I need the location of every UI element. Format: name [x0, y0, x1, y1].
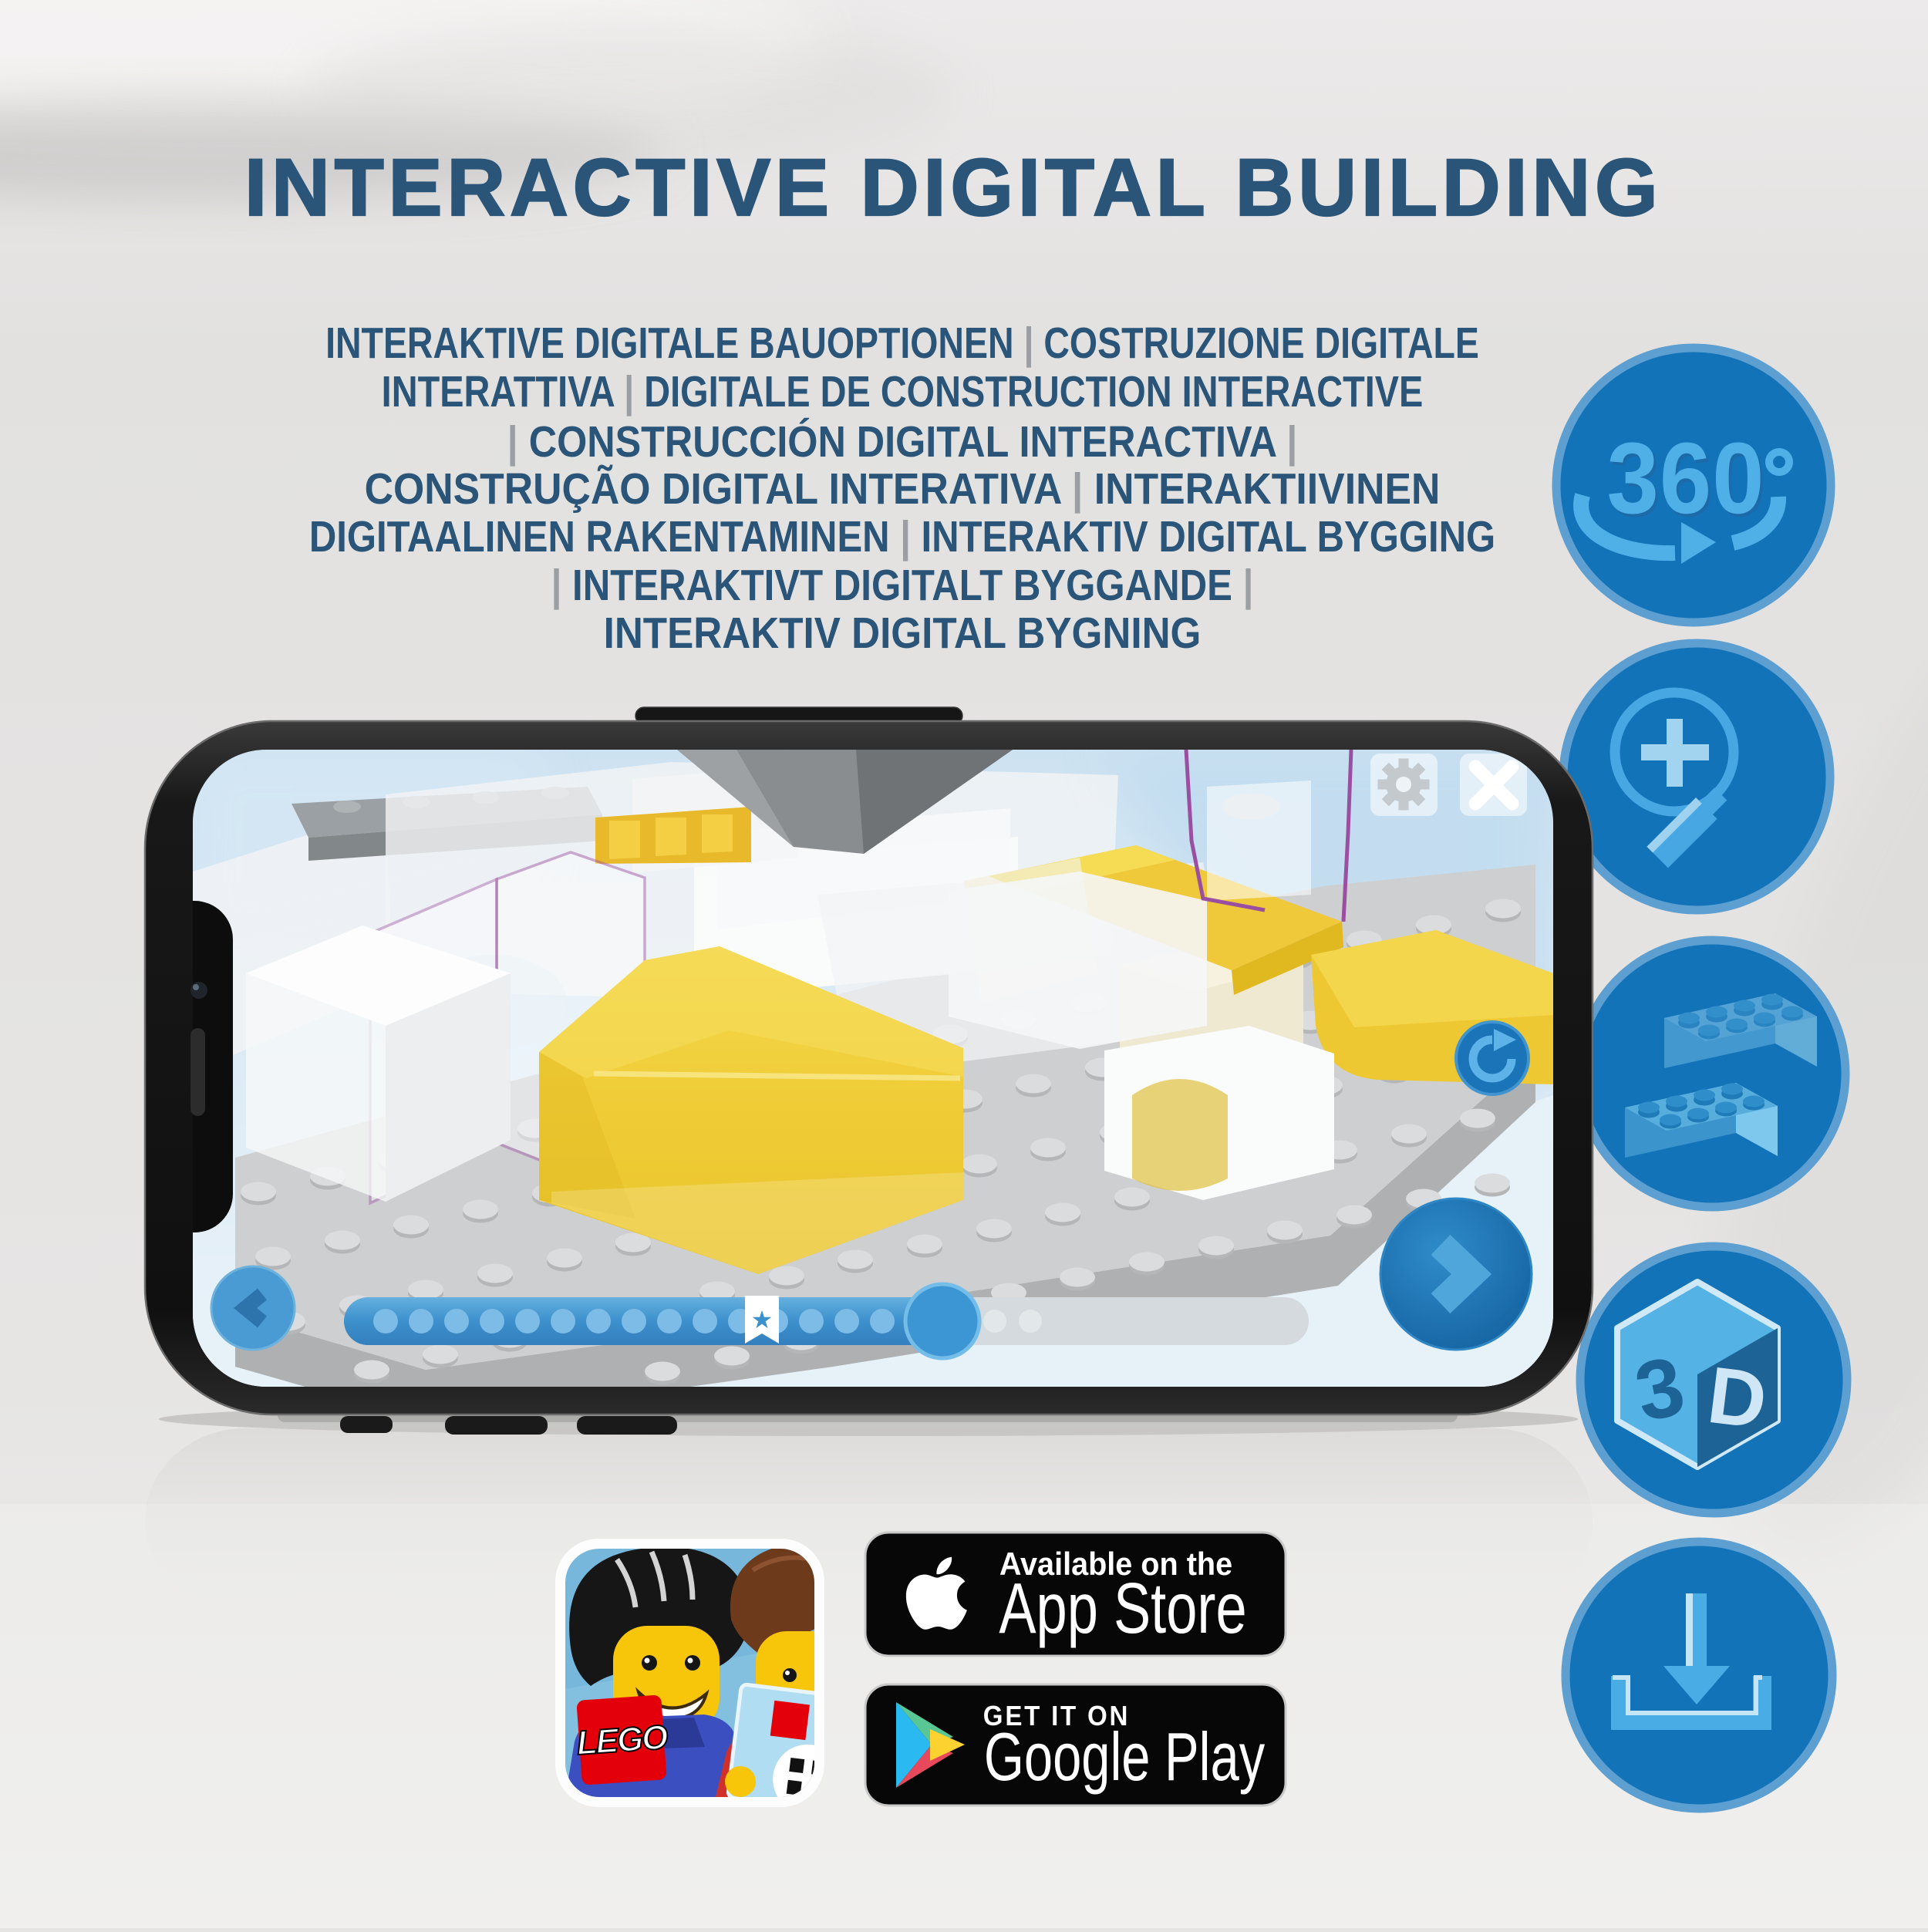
svg-text:D: D	[1703, 1350, 1771, 1446]
svg-text:★: ★	[751, 1306, 774, 1334]
svg-text:360: 360	[1607, 422, 1765, 534]
svg-text:INTERACTIVE DIGITAL BUILDING: INTERACTIVE DIGITAL BUILDING	[244, 143, 1663, 233]
svg-text:INTERAKTIVE DIGITALE BAUOPTION: INTERAKTIVE DIGITALE BAUOPTIONEN | COSTR…	[325, 319, 1479, 369]
svg-text:| INTERAKTIVT DIGITALT BYGGAND: | INTERAKTIVT DIGITALT BYGGANDE |	[551, 561, 1254, 611]
svg-text:INTERAKTIV DIGITAL BYGNING: INTERAKTIV DIGITAL BYGNING	[604, 609, 1202, 658]
svg-text:App Store: App Store	[999, 1568, 1246, 1648]
svg-text:INTERATTIVA | DIGITALE DE CONS: INTERATTIVA | DIGITALE DE CONSTRUCTION I…	[382, 368, 1424, 416]
svg-text:CONSTRUÇÃO DIGITAL INTERATIVA: CONSTRUÇÃO DIGITAL INTERATIVA | INTERAKT…	[365, 464, 1441, 514]
svg-text:Google Play: Google Play	[984, 1718, 1265, 1795]
svg-text:| CONSTRUCCIÓN DIGITAL INTERAC: | CONSTRUCCIÓN DIGITAL INTERACTIVA |	[507, 417, 1298, 467]
svg-text:LEGO: LEGO	[575, 1718, 669, 1762]
svg-text:DIGITAALINEN RAKENTAMINEN | IN: DIGITAALINEN RAKENTAMINEN | INTERAKTIV D…	[309, 513, 1495, 562]
